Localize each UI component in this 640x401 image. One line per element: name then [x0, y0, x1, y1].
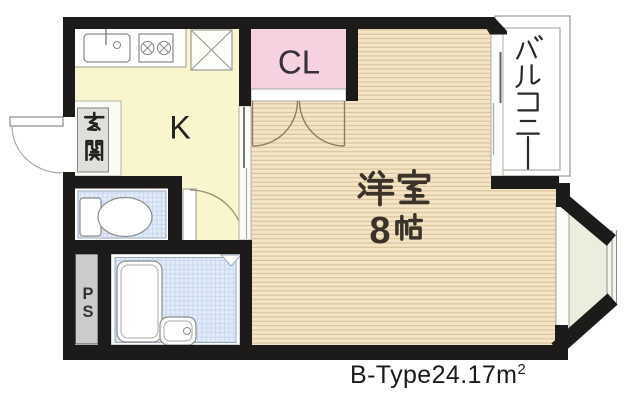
svg-text:B-Type24.17m2: B-Type24.17m2 [350, 361, 526, 389]
svg-text:P: P [82, 285, 93, 303]
svg-text:CL: CL [278, 44, 320, 81]
svg-text:K: K [169, 110, 190, 146]
svg-text:S: S [82, 303, 93, 321]
svg-text:8: 8 [369, 210, 390, 252]
